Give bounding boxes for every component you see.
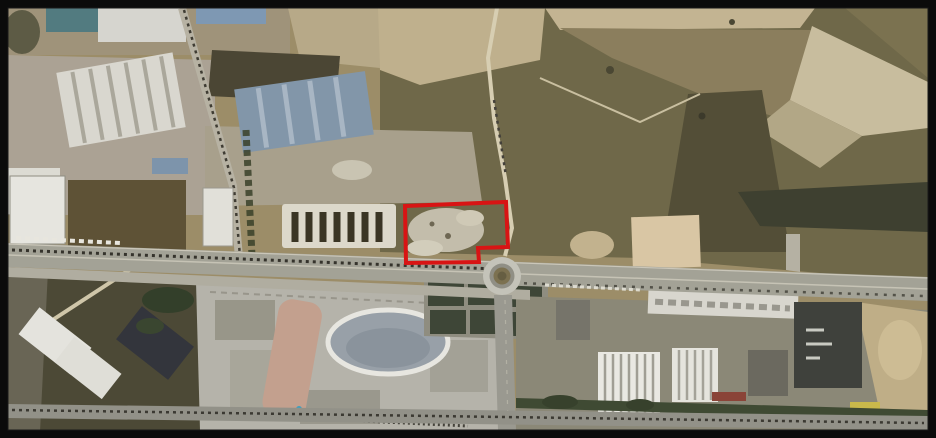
mall-block — [215, 300, 275, 340]
plot-debris — [445, 233, 451, 239]
tree-dot — [729, 19, 735, 25]
roundabout-hub — [498, 272, 507, 281]
roadside-trees — [626, 399, 654, 411]
grey-building — [748, 350, 788, 396]
sandy-blob — [878, 320, 922, 380]
tree-cluster — [136, 318, 164, 334]
satellite-screenshot — [0, 0, 936, 438]
north-arm-road — [786, 234, 800, 272]
tree-cluster — [142, 287, 194, 313]
oval-roof-shade — [346, 328, 430, 368]
roadside-trees — [542, 395, 578, 409]
field-pale-top — [545, 8, 815, 30]
blue-strip-building — [196, 8, 266, 24]
teal-roof-building — [46, 8, 98, 32]
industrial-buildings-southeast — [516, 289, 928, 432]
parking-row — [430, 310, 466, 334]
large-white-warehouse — [10, 176, 65, 244]
sandy-patch — [570, 231, 614, 259]
shed-gaps — [295, 212, 379, 242]
roundabout — [483, 257, 521, 295]
grey-building — [556, 300, 590, 340]
red-roof-strip — [712, 392, 746, 401]
scrub-corner — [4, 10, 40, 54]
tall-white-building — [203, 188, 233, 246]
yard-debris — [332, 160, 372, 180]
tree-dot — [699, 113, 706, 120]
sandy-plot — [631, 215, 701, 269]
blue-roof-small — [152, 158, 188, 174]
aerial-map-canvas — [0, 0, 936, 438]
plot-debris — [430, 222, 435, 227]
plot-light-patch — [407, 240, 443, 256]
brown-dirt-lot — [68, 180, 186, 250]
tree-dot — [606, 66, 614, 74]
plot-light-patch — [456, 210, 484, 226]
white-roof-building — [98, 8, 186, 42]
